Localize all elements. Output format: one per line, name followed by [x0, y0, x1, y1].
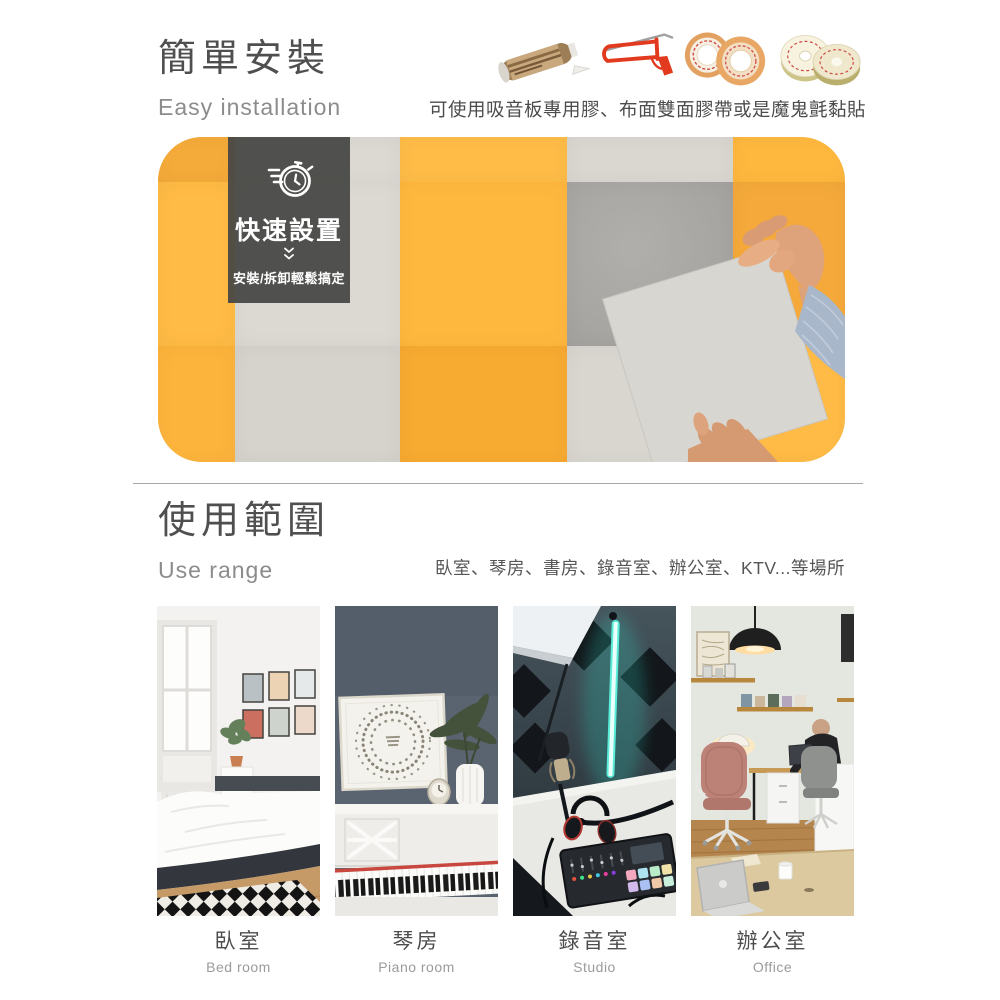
piano-room-photo — [335, 606, 498, 916]
place-label-en: Bed room — [206, 959, 271, 975]
tile — [400, 182, 567, 346]
place-label-zh: 辦公室 — [737, 930, 809, 954]
quick-setup-title: 快速設置 — [235, 211, 343, 247]
velcro-rolls-icon — [776, 29, 866, 87]
place-label-zh: 臥室 — [215, 930, 263, 954]
tile — [158, 346, 235, 462]
use-range-gallery: 臥室 Bed room — [157, 606, 1000, 975]
range-title-block: 使用範圍 Use range — [158, 500, 330, 584]
page: 簡單安裝 Easy installation — [0, 0, 1000, 1000]
quick-setup-badge: 快速設置 安裝/拆卸輕鬆搞定 — [228, 137, 350, 303]
gallery-item-studio: 錄音室 Studio — [513, 606, 676, 975]
place-label-en: Office — [753, 959, 792, 975]
studio-photo — [513, 606, 676, 916]
installation-banner: 快速設置 安裝/拆卸輕鬆搞定 — [158, 137, 845, 462]
place-label-zh: 錄音室 — [559, 930, 631, 954]
gallery-item-bedroom: 臥室 Bed room — [157, 606, 320, 975]
range-subtitle: Use range — [158, 557, 330, 585]
range-title: 使用範圍 — [158, 500, 330, 544]
range-header: 使用範圍 Use range 臥室、琴房、書房、錄音室、辦公室、KTV...等場… — [0, 484, 1000, 584]
install-title-block: 簡單安裝 Easy installation — [158, 38, 341, 122]
tile — [400, 137, 567, 182]
install-title: 簡單安裝 — [158, 38, 341, 82]
tile — [400, 346, 567, 462]
caulking-gun-icon — [596, 28, 676, 88]
place-label-zh: 琴房 — [393, 930, 441, 954]
install-caption: 可使用吸音板專用膠、布面雙面膠帶或是魔鬼氈黏貼 — [429, 96, 866, 122]
tools-row — [492, 27, 866, 89]
office-photo — [691, 606, 854, 916]
tile — [235, 346, 400, 462]
quick-setup-note: 安裝/拆卸輕鬆搞定 — [233, 268, 345, 287]
stopwatch-icon — [261, 153, 317, 203]
range-caption: 臥室、琴房、書房、錄音室、辦公室、KTV...等場所 — [435, 555, 845, 584]
double-chevron-down-icon — [281, 247, 297, 261]
install-tools-block: 可使用吸音板專用膠、布面雙面膠帶或是魔鬼氈黏貼 — [429, 27, 866, 122]
place-label-en: Studio — [573, 959, 616, 975]
tape-rolls-icon — [680, 28, 772, 88]
bedroom-photo — [157, 606, 320, 916]
gallery-item-office: 辦公室 Office — [691, 606, 854, 975]
install-header: 簡單安裝 Easy installation — [0, 0, 1000, 122]
hand-holding-panel — [558, 137, 845, 462]
tile — [158, 137, 235, 182]
place-label-en: Piano room — [378, 959, 455, 975]
tile — [158, 182, 235, 346]
adhesive-tube-icon — [492, 29, 592, 87]
gallery-item-piano-room: 琴房 Piano room — [335, 606, 498, 975]
install-subtitle: Easy installation — [158, 94, 341, 122]
section-easy-installation: 簡單安裝 Easy installation — [0, 0, 1000, 462]
section-use-range: 使用範圍 Use range 臥室、琴房、書房、錄音室、辦公室、KTV...等場… — [0, 484, 1000, 975]
